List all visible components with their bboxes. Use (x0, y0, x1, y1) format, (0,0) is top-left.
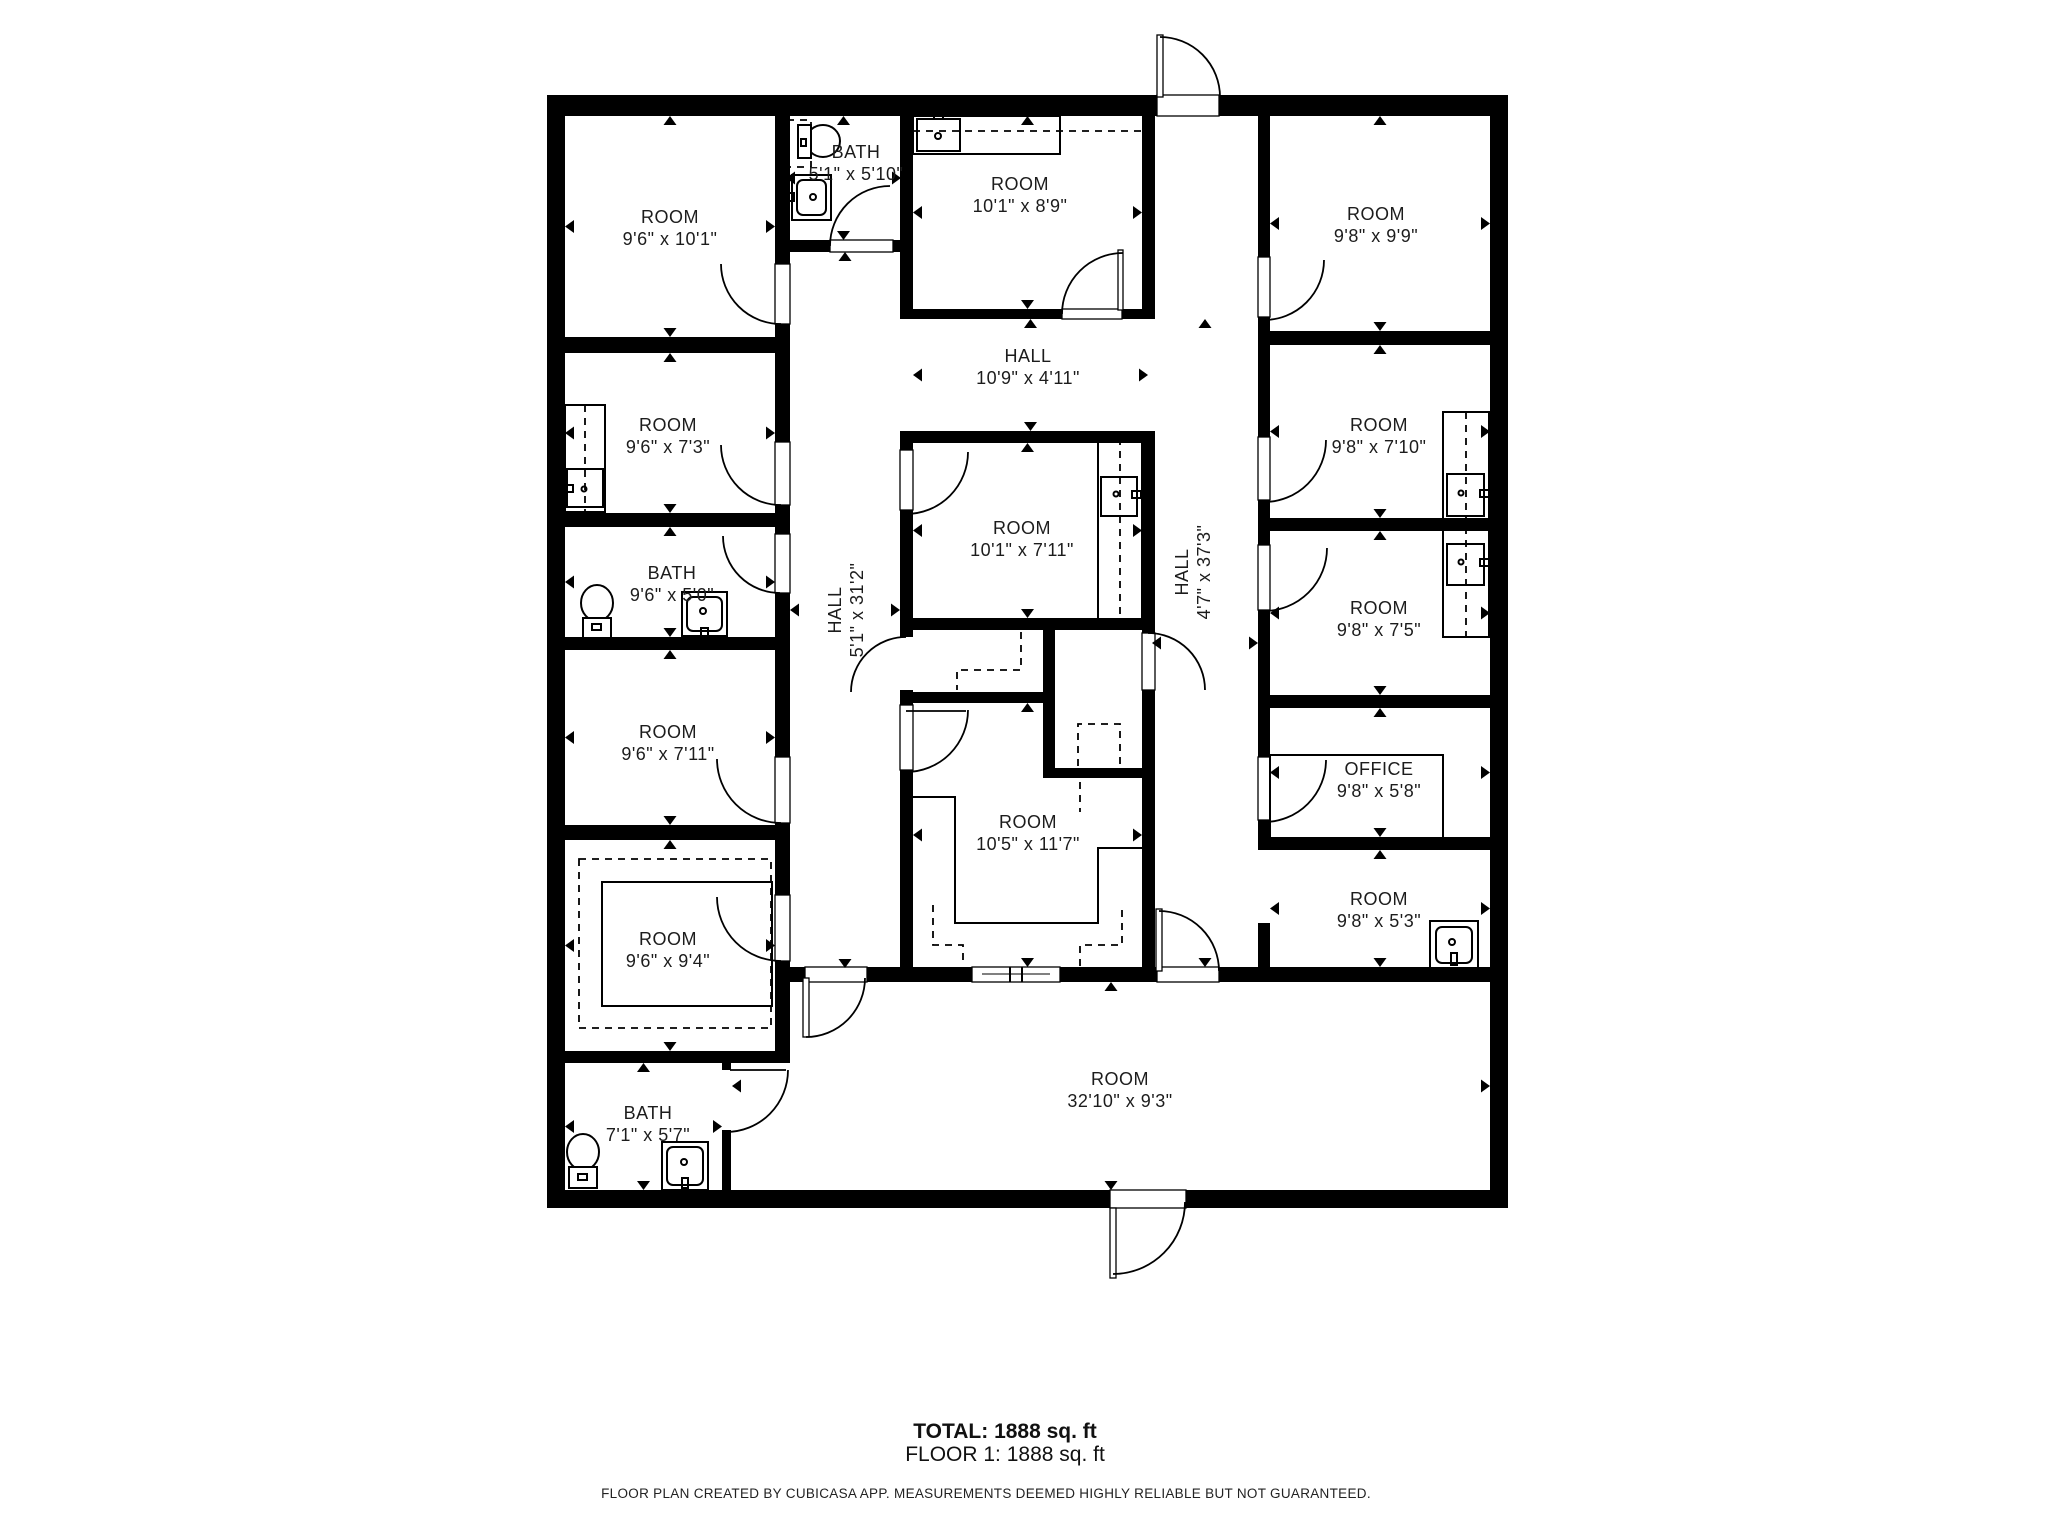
dimension-arrow (891, 604, 900, 617)
dimension-arrow (1374, 116, 1387, 125)
vanity-symbol (1443, 527, 1489, 637)
dimension-arrow (664, 504, 677, 513)
bath-label-top: BATH 5'1" x 5'10" (809, 142, 904, 184)
dimension-arrow (1024, 422, 1037, 431)
dimension-arrow (1374, 322, 1387, 331)
dimension-arrow (1481, 1080, 1490, 1093)
dimension-arrow (1374, 828, 1387, 837)
svg-text:ROOM: ROOM (1347, 204, 1405, 224)
bath-label-left: BATH 9'6" x 5'0" (630, 563, 714, 605)
room-label-bottom: ROOM 32'10" x 9'3" (1067, 1069, 1172, 1111)
dimension-arrow (1024, 319, 1037, 328)
svg-text:9'6" x 9'4": 9'6" x 9'4" (626, 951, 710, 971)
front-door-opening (1157, 95, 1219, 116)
svg-text:HALL: HALL (1004, 346, 1051, 366)
dimension-arrow (1374, 509, 1387, 518)
dimension-arrow (766, 731, 775, 744)
dimension-arrow (913, 524, 922, 537)
room-label-right-5: ROOM 9'8" x 5'3" (1337, 889, 1421, 931)
svg-text:ROOM: ROOM (991, 174, 1049, 194)
dimension-arrow (565, 220, 574, 233)
dimension-arrow (565, 1120, 574, 1133)
svg-text:ROOM: ROOM (1091, 1069, 1149, 1089)
sink-symbol (662, 1142, 708, 1190)
dimension-arrow (1021, 958, 1034, 967)
vanity-symbol (565, 405, 605, 512)
svg-text:9'6" x 7'11": 9'6" x 7'11" (621, 744, 714, 764)
svg-text:4'7" x 37'3": 4'7" x 37'3" (1194, 525, 1214, 620)
dimension-arrow (1249, 637, 1258, 650)
dimension-arrow (1199, 319, 1212, 328)
svg-text:ROOM: ROOM (1350, 889, 1408, 909)
dimension-arrow (839, 252, 852, 261)
total-area-text: TOTAL: 1888 sq. ft (913, 1420, 1097, 1443)
dimension-arrow (1105, 1181, 1118, 1190)
dimension-arrow (1133, 206, 1142, 219)
room-label-tl: ROOM 9'6" x 10'1" (623, 207, 718, 249)
dimension-arrow (664, 328, 677, 337)
svg-text:ROOM: ROOM (1350, 598, 1408, 618)
dimension-arrow (1133, 829, 1142, 842)
dimension-arrow (664, 650, 677, 659)
dimension-arrow (1374, 531, 1387, 540)
room-label-center: ROOM 10'1" x 7'11" (970, 518, 1074, 560)
floor-plan-canvas: ROOM 9'6" x 10'1" BATH 5'1" x 5'10" ROOM… (0, 0, 2048, 1536)
interior-walls (565, 95, 1508, 1190)
dimension-arrow (565, 939, 574, 952)
open-passage (1258, 850, 1270, 923)
room-label-left-4: ROOM 9'6" x 9'4" (626, 929, 710, 971)
svg-text:ROOM: ROOM (639, 415, 697, 435)
svg-text:ROOM: ROOM (993, 518, 1051, 538)
dimension-arrow (732, 1080, 741, 1093)
svg-text:ROOM: ROOM (1350, 415, 1408, 435)
toilet-symbol (567, 1134, 599, 1188)
bath-label-bottom: BATH 7'1" x 5'7" (606, 1103, 690, 1145)
svg-text:9'8" x 5'3": 9'8" x 5'3" (1337, 911, 1421, 931)
svg-text:7'1" x 5'7": 7'1" x 5'7" (606, 1125, 690, 1145)
dimension-arrow (837, 116, 850, 125)
room-label-top-middle: ROOM 10'1" x 8'9" (973, 174, 1068, 216)
hall-label-left: HALL 5'1" x 31'2" (825, 563, 867, 658)
dimension-arrow (913, 206, 922, 219)
svg-text:9'8" x 7'10": 9'8" x 7'10" (1332, 437, 1427, 457)
door-arcs (717, 35, 1327, 1278)
dimension-arrow (1270, 607, 1279, 620)
svg-text:9'6" x 7'3": 9'6" x 7'3" (626, 437, 710, 457)
sink-symbol (1430, 921, 1478, 969)
svg-text:ROOM: ROOM (639, 929, 697, 949)
room-label-top-right: ROOM 9'8" x 9'9" (1334, 204, 1418, 246)
dimension-arrow (637, 1063, 650, 1072)
svg-text:32'10" x 9'3": 32'10" x 9'3" (1067, 1091, 1172, 1111)
svg-text:9'8" x 7'5": 9'8" x 7'5" (1337, 620, 1421, 640)
dimension-arrow (766, 220, 775, 233)
svg-text:BATH: BATH (624, 1103, 673, 1123)
disclaimer-text: FLOOR PLAN CREATED BY CUBICASA APP. MEAS… (601, 1486, 1371, 1501)
svg-text:9'6" x 5'0": 9'6" x 5'0" (630, 585, 714, 605)
svg-text:HALL: HALL (1172, 548, 1192, 595)
office-label: OFFICE 9'8" x 5'8" (1337, 759, 1421, 801)
svg-text:10'9" x 4'11": 10'9" x 4'11" (976, 368, 1080, 388)
dimension-arrow (1270, 217, 1279, 230)
dimension-arrow (565, 576, 574, 589)
svg-text:9'8" x 5'8": 9'8" x 5'8" (1337, 781, 1421, 801)
svg-text:ROOM: ROOM (999, 812, 1057, 832)
dimension-arrow (913, 829, 922, 842)
exterior-walls (547, 95, 1508, 1208)
dimension-arrow (713, 1120, 722, 1133)
dimension-arrow (565, 731, 574, 744)
dimension-arrow (1270, 425, 1279, 438)
dimension-arrow (1270, 766, 1279, 779)
dimension-arrow (1133, 524, 1142, 537)
room-label-left-3: ROOM 9'6" x 7'11" (621, 722, 714, 764)
dimension-arrow (1481, 217, 1490, 230)
dimension-arrow (837, 231, 850, 240)
svg-text:5'1" x 5'10": 5'1" x 5'10" (809, 164, 904, 184)
room-label-right-2: ROOM 9'8" x 7'10" (1332, 415, 1427, 457)
dimension-arrow (1139, 369, 1148, 382)
dimension-arrow (913, 369, 922, 382)
svg-text:ROOM: ROOM (641, 207, 699, 227)
dimension-arrow (664, 527, 677, 536)
hall-label-right: HALL 4'7" x 37'3" (1172, 525, 1214, 620)
dimension-arrow (1105, 982, 1118, 991)
dashed-features (933, 632, 1122, 966)
back-door-opening (1110, 1190, 1186, 1208)
dimension-arrow (664, 353, 677, 362)
svg-text:10'5" x 11'7": 10'5" x 11'7" (976, 834, 1080, 854)
fixtures (565, 111, 1489, 1190)
hall-label-top: HALL 10'9" x 4'11" (976, 346, 1080, 388)
dimension-arrow (664, 116, 677, 125)
dimension-arrow (1021, 443, 1034, 452)
dimension-arrow (766, 576, 775, 589)
dimension-arrow (637, 1181, 650, 1190)
footer: TOTAL: 1888 sq. ft FLOOR 1: 1888 sq. ft … (601, 1420, 1371, 1501)
dimension-arrow (1374, 958, 1387, 967)
window-symbol (972, 967, 1060, 982)
svg-text:BATH: BATH (648, 563, 697, 583)
dimension-arrow (1374, 686, 1387, 695)
dimension-arrow (664, 840, 677, 849)
dimension-arrow (1481, 766, 1490, 779)
dimension-arrow (790, 604, 799, 617)
dimension-arrow (664, 1042, 677, 1051)
dimension-arrow (1021, 609, 1034, 618)
room-label-center-lower: ROOM 10'5" x 11'7" (976, 812, 1080, 854)
svg-text:9'8" x 9'9": 9'8" x 9'9" (1334, 226, 1418, 246)
dimension-arrow (1021, 116, 1034, 125)
svg-text:HALL: HALL (825, 586, 845, 633)
svg-text:9'6" x 10'1": 9'6" x 10'1" (623, 229, 718, 249)
dimension-arrow (1199, 958, 1212, 967)
svg-text:OFFICE: OFFICE (1345, 759, 1414, 779)
dimension-arrows (565, 116, 1490, 1190)
room-label-right-3: ROOM 9'8" x 7'5" (1337, 598, 1421, 640)
dimension-arrow (664, 816, 677, 825)
svg-text:ROOM: ROOM (639, 722, 697, 742)
dimension-arrow (1270, 902, 1279, 915)
dimension-arrow (664, 628, 677, 637)
dimension-arrow (1374, 850, 1387, 859)
svg-text:BATH: BATH (832, 142, 881, 162)
door-openings (722, 95, 1270, 1208)
dimension-arrow (766, 427, 775, 440)
dimension-arrow (1021, 703, 1034, 712)
dimension-arrow (565, 427, 574, 440)
dimension-arrow (1021, 300, 1034, 309)
floor-area-text: FLOOR 1: 1888 sq. ft (905, 1443, 1105, 1466)
svg-text:10'1" x 7'11": 10'1" x 7'11" (970, 540, 1074, 560)
toilet-symbol (581, 585, 613, 638)
dimension-arrow (1374, 345, 1387, 354)
room-label-left-2: ROOM 9'6" x 7'3" (626, 415, 710, 457)
dimension-arrow (1481, 902, 1490, 915)
svg-text:5'1" x 31'2": 5'1" x 31'2" (847, 563, 867, 658)
dimension-arrow (1374, 708, 1387, 717)
svg-text:10'1" x 8'9": 10'1" x 8'9" (973, 196, 1068, 216)
